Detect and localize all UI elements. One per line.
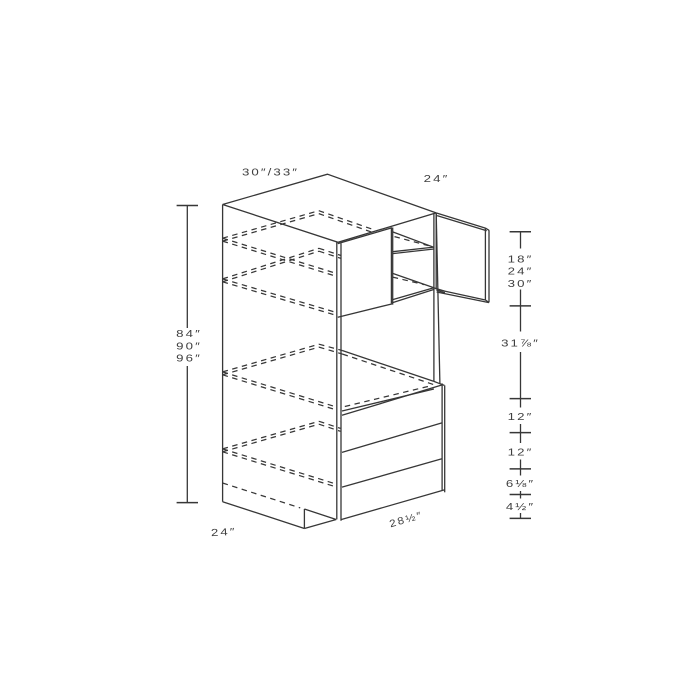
- svg-text:24″: 24″: [508, 265, 534, 277]
- svg-text:30″: 30″: [508, 277, 534, 289]
- svg-text:31⅞″: 31⅞″: [501, 337, 540, 349]
- svg-text:84″: 84″: [176, 328, 202, 340]
- svg-text:24″: 24″: [211, 525, 237, 538]
- svg-text:4½″: 4½″: [506, 501, 535, 513]
- svg-text:12″: 12″: [508, 411, 534, 423]
- svg-text:96″: 96″: [176, 352, 202, 364]
- svg-text:28½″: 28½″: [388, 510, 424, 530]
- svg-text:6⅛″: 6⅛″: [506, 478, 535, 490]
- svg-text:12″: 12″: [508, 446, 534, 458]
- svg-text:18″: 18″: [508, 253, 534, 265]
- svg-text:90″: 90″: [176, 340, 202, 352]
- svg-text:24″: 24″: [424, 173, 450, 185]
- svg-text:30″/33″: 30″/33″: [242, 166, 299, 178]
